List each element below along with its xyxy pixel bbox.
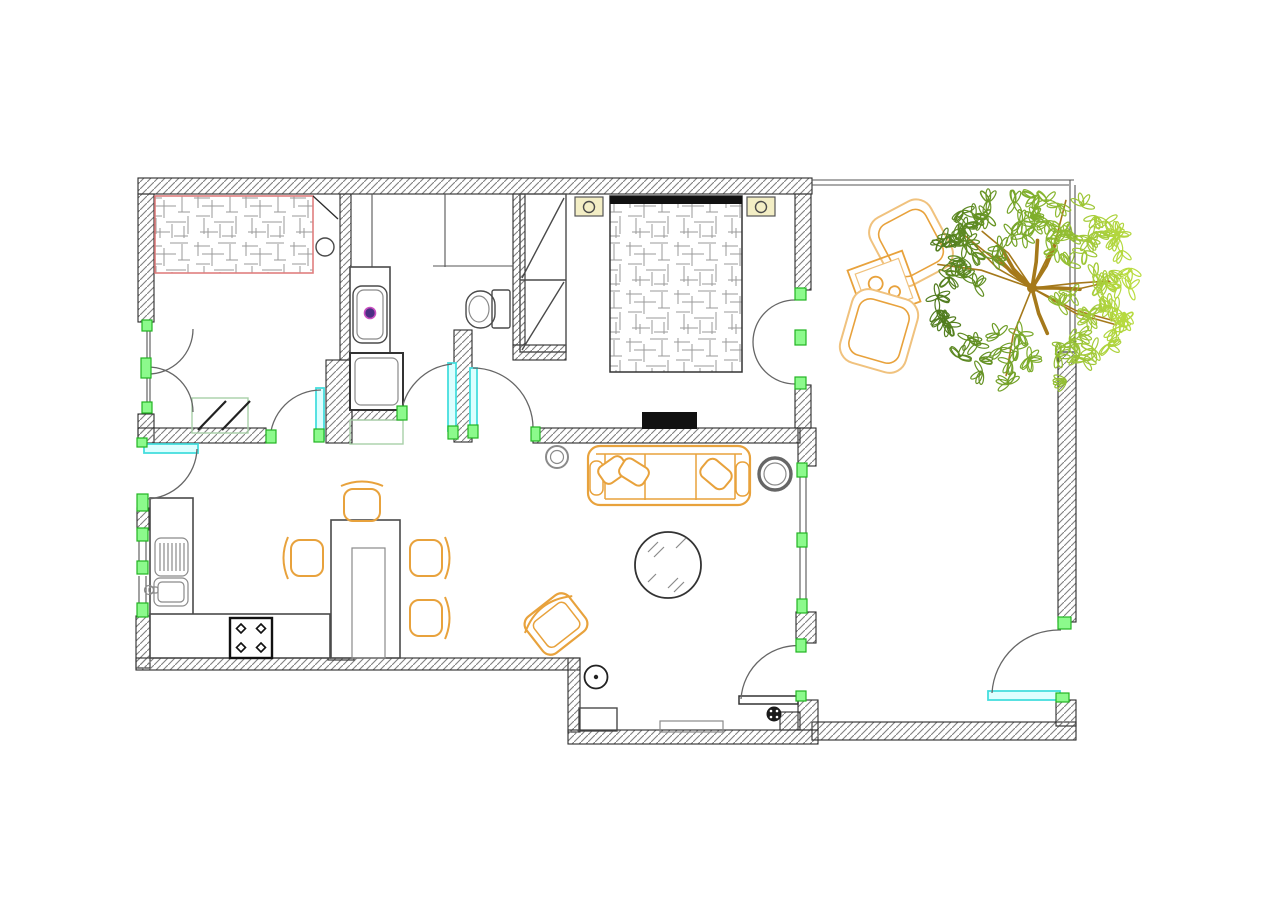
wall-bottom-kitchen xyxy=(136,658,580,670)
living-hall-door-swing xyxy=(473,368,533,429)
planter-small xyxy=(546,446,568,468)
planter-large xyxy=(759,458,791,490)
terrace-fence-top xyxy=(812,180,1074,185)
dining-chair-north xyxy=(341,482,383,522)
wall-terrace-corner xyxy=(1056,700,1076,726)
built-in-wardrobe xyxy=(520,194,566,352)
kitchen-door-leaf xyxy=(144,444,198,453)
mat-stripes xyxy=(198,401,250,430)
sofa-three-seat xyxy=(588,446,750,505)
wall-entry-step xyxy=(568,658,580,732)
washing-machine xyxy=(350,353,403,410)
laundry-shelf-mat xyxy=(350,420,403,444)
living-armchair xyxy=(518,587,594,660)
wall-entry-right-pier xyxy=(798,700,818,730)
bathroom-door-swing xyxy=(401,364,452,416)
double-bed xyxy=(610,196,742,372)
floor-plan-canvas xyxy=(0,0,1274,900)
floor-plan-drawing xyxy=(0,0,1274,900)
chair-back xyxy=(445,537,450,579)
bed-second-bedroom xyxy=(155,196,313,273)
garden-gate-leaf xyxy=(988,691,1060,700)
wall-living-right-pier-lower xyxy=(796,612,816,643)
floor-lamp xyxy=(585,666,608,689)
entrance-door-leaf xyxy=(739,696,798,704)
living-hall-door-leaf xyxy=(470,368,477,430)
wall-living-right-pier-upper xyxy=(798,428,816,466)
cooktop-frame xyxy=(230,618,272,658)
wardrobe-outline xyxy=(520,194,566,352)
wall-terrace-bottom xyxy=(812,722,1076,740)
kitchen-door-swing xyxy=(146,449,197,499)
kitchen xyxy=(145,498,331,658)
bed-headboard xyxy=(610,196,742,204)
wall-entry-doorstep xyxy=(780,712,800,730)
french-door-swing-upper xyxy=(753,300,795,342)
living-room xyxy=(518,446,791,689)
wall-bedroom-bottom xyxy=(533,428,800,443)
toilet-bowl xyxy=(469,296,489,322)
entry-hall xyxy=(579,646,805,732)
bathroom xyxy=(433,194,513,328)
master-bedroom xyxy=(575,196,795,429)
wall-bedroom2-bottom xyxy=(138,428,266,443)
laundry-niche xyxy=(350,194,403,444)
shoe-cabinet xyxy=(579,708,617,731)
wall-terrace-right xyxy=(1058,352,1076,622)
dining-chair-east-upper xyxy=(410,537,450,579)
cooktop xyxy=(230,618,272,658)
garden-tree xyxy=(925,188,1142,392)
garden-gate-swing xyxy=(992,630,1061,693)
coffee-table-round xyxy=(635,532,701,598)
dining-chair-west xyxy=(284,537,324,579)
dining-chair-east-lower xyxy=(410,597,450,639)
chair-seat xyxy=(410,600,442,636)
toilet xyxy=(466,290,510,328)
wall-bedroom-right-upper xyxy=(795,194,811,290)
wall-bathroom-right xyxy=(513,194,525,345)
bedroom2-hall-door-swing xyxy=(270,390,321,441)
bathroom-door-leaf xyxy=(448,363,456,431)
chair-seat xyxy=(291,540,323,576)
drainboard-ribs xyxy=(160,543,184,571)
round-stool xyxy=(316,238,334,256)
chair-back xyxy=(445,597,450,639)
corner-brace xyxy=(313,196,338,219)
shower-partition xyxy=(433,194,513,267)
second-bedroom xyxy=(148,196,338,433)
bedroom-tv xyxy=(642,412,697,429)
wall-top-exterior xyxy=(138,178,812,194)
terrace-fence-right xyxy=(1070,180,1075,352)
floor-drain xyxy=(767,707,782,722)
coffee-table-top xyxy=(635,532,701,598)
chair-back xyxy=(284,537,289,579)
chair-back xyxy=(341,482,383,487)
dining-table xyxy=(331,520,400,658)
chair-seat xyxy=(410,540,442,576)
wall-left-upper xyxy=(138,194,154,322)
basin-drain xyxy=(365,308,376,319)
french-door-swing-lower xyxy=(753,342,795,384)
chair-seat xyxy=(344,489,380,521)
wall-hall-pier-left xyxy=(326,360,352,443)
wall-bedroom-right-lower xyxy=(795,385,811,428)
wardrobe-diagonals xyxy=(522,198,564,350)
